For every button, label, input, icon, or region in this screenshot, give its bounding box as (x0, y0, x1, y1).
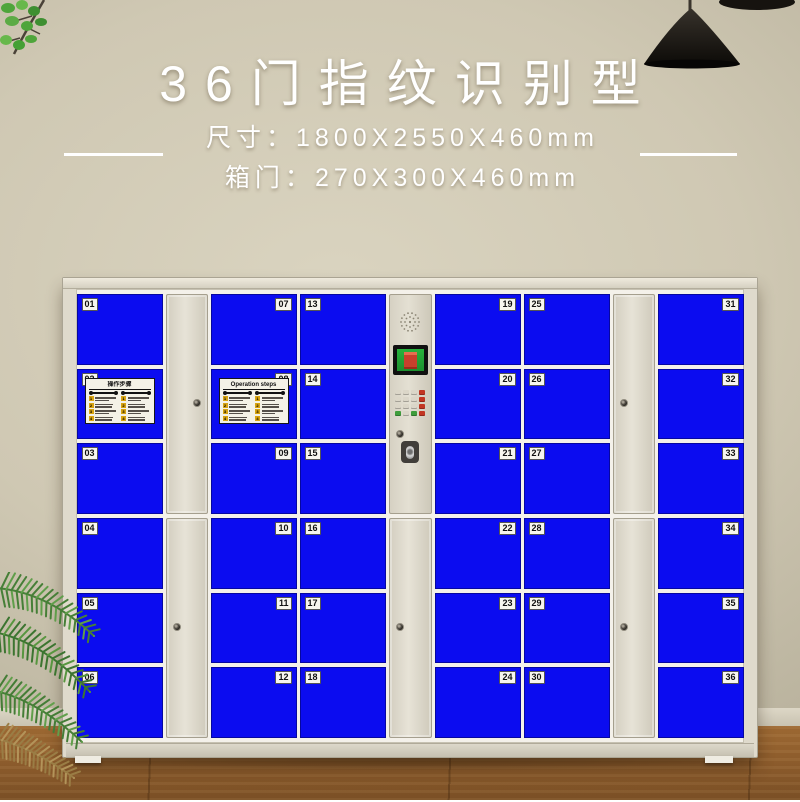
door-column: 252627282930 (524, 290, 610, 742)
door-number-label: 26 (529, 373, 545, 386)
step-arrow-line (122, 392, 150, 394)
step-text-lines (229, 409, 252, 414)
step-item: 4 (255, 416, 285, 421)
door-number-label: 14 (305, 373, 321, 386)
step-text-bar (95, 404, 113, 406)
keypad-key[interactable] (419, 411, 425, 416)
step-text-bar (229, 397, 250, 399)
keyhole-lock[interactable] (396, 623, 404, 631)
door-number-label: 23 (499, 597, 515, 610)
locker-door-21[interactable]: 21 (435, 443, 521, 514)
locker-door-07[interactable]: 07 (211, 294, 297, 365)
keypad-key[interactable] (403, 390, 409, 395)
step-number: 3 (255, 409, 260, 414)
step-number: 1 (255, 396, 260, 401)
step-text-bar (128, 406, 145, 408)
step-item: 3 (121, 409, 151, 414)
step-number: 1 (121, 396, 126, 401)
locker-door-31[interactable]: 31 (658, 294, 744, 365)
step-text-bar (128, 400, 142, 402)
locker-door-33[interactable]: 33 (658, 443, 744, 514)
keyhole-lock[interactable] (620, 623, 628, 631)
step-number: 1 (223, 396, 228, 401)
step-number: 4 (255, 416, 260, 421)
keypad-key[interactable] (419, 397, 425, 402)
door-number-label: 03 (82, 447, 98, 460)
step-text-lines (128, 409, 151, 414)
screen-graphic (404, 352, 417, 369)
step-text-bar (262, 404, 280, 406)
step-number: 4 (89, 416, 94, 421)
tall-door-column (166, 290, 208, 742)
door-number-label: 36 (722, 671, 738, 684)
step-text-bar (229, 406, 246, 408)
step-number: 2 (223, 403, 228, 408)
locker-door-32[interactable]: 32 (658, 369, 744, 440)
keypad-key[interactable] (395, 404, 401, 409)
display-screen[interactable] (393, 345, 428, 375)
step-number: 4 (223, 416, 228, 421)
step-item: 2 (89, 403, 119, 408)
locker-door-10[interactable]: 10 (211, 518, 297, 589)
locker-door-03[interactable]: 03 (77, 443, 163, 514)
tall-door-column (613, 290, 655, 742)
door-column: 313233343536 (658, 290, 744, 742)
step-text-bar (229, 413, 243, 415)
step-text-bar (95, 419, 112, 421)
keypad-key[interactable] (419, 404, 425, 409)
step-text-bar (128, 413, 142, 415)
keyhole-lock[interactable] (193, 399, 201, 407)
locker-door-22[interactable]: 22 (435, 518, 521, 589)
locker-door-34[interactable]: 34 (658, 518, 744, 589)
step-text-bar (229, 419, 246, 421)
locker-door-24[interactable]: 24 (435, 667, 521, 738)
keypad-key[interactable] (395, 397, 401, 402)
sticker-column: 1234 (223, 391, 253, 421)
door-number-label: 17 (305, 597, 321, 610)
step-text-bar (229, 410, 250, 412)
sticker-column: 1234 (89, 391, 119, 421)
door-number-label: 16 (305, 522, 321, 535)
step-text-bar (262, 397, 283, 399)
step-item: 2 (223, 403, 253, 408)
door-number-label: 32 (722, 373, 738, 386)
display-screen-content (397, 349, 424, 371)
keypad-key[interactable] (411, 411, 417, 416)
step-text-bar (229, 400, 243, 402)
locker-door-02[interactable]: 02操作步骤12341234 (77, 369, 163, 440)
divider-line-left (64, 153, 163, 156)
door-number-label: 04 (82, 522, 98, 535)
locker-door-13[interactable]: 13 (300, 294, 386, 365)
sticker-column: 1234 (255, 391, 285, 421)
step-text-bar (128, 397, 149, 399)
spec-door-value: 270X300X460mm (315, 164, 580, 192)
step-text-lines (262, 403, 285, 408)
tall-locker-door[interactable] (613, 294, 655, 514)
locker-door-30[interactable]: 30 (524, 667, 610, 738)
door-column: 131415161718 (300, 290, 386, 742)
door-number-label: 30 (529, 671, 545, 684)
door-number-label: 09 (275, 447, 291, 460)
step-text-bar (95, 400, 109, 402)
step-text-lines (95, 416, 118, 421)
door-number-label: 25 (529, 298, 545, 311)
door-number-label: 10 (275, 522, 291, 535)
keypad-key[interactable] (411, 397, 417, 402)
step-text-lines (262, 396, 285, 401)
door-number-label: 33 (722, 447, 738, 460)
door-number-label: 29 (529, 597, 545, 610)
door-number-label: 12 (275, 671, 291, 684)
sticker-title: 操作步骤 (89, 381, 151, 390)
step-item: 1 (89, 396, 119, 401)
step-number: 2 (255, 403, 260, 408)
door-number-label: 27 (529, 447, 545, 460)
door-column: 0708Operation steps1234123409101112 (211, 290, 297, 742)
step-item: 4 (89, 416, 119, 421)
spec-door-label: 箱门： (225, 164, 315, 192)
locker-door-16[interactable]: 16 (300, 518, 386, 589)
door-number-label: 24 (499, 671, 515, 684)
keypad-key[interactable] (419, 390, 425, 395)
step-number: 2 (89, 403, 94, 408)
divider-line-right (640, 153, 737, 156)
door-number-label: 15 (305, 447, 321, 460)
keypad-key[interactable] (403, 411, 409, 416)
step-number: 3 (89, 409, 94, 414)
locker-base (66, 743, 754, 757)
locker-door-11[interactable]: 11 (211, 593, 297, 664)
door-number-label: 11 (276, 597, 292, 610)
operation-steps-sticker: 操作步骤12341234 (85, 378, 155, 424)
fingerprint-window (406, 446, 414, 459)
page-title: 36门指纹识别型 (0, 44, 800, 116)
step-number: 2 (121, 403, 126, 408)
locker-door-29[interactable]: 29 (524, 593, 610, 664)
step-text-bar (262, 400, 276, 402)
step-text-bar (262, 419, 279, 421)
step-text-bar (95, 410, 116, 412)
step-text-bar (95, 397, 116, 399)
locker-door-09[interactable]: 09 (211, 443, 297, 514)
locker-door-12[interactable]: 12 (211, 667, 297, 738)
step-text-bar (128, 417, 146, 419)
locker-door-36[interactable]: 36 (658, 667, 744, 738)
service-door[interactable] (389, 518, 432, 738)
locker-door-15[interactable]: 15 (300, 443, 386, 514)
step-text-lines (262, 416, 285, 421)
step-item: 4 (121, 416, 151, 421)
step-number: 4 (121, 416, 126, 421)
tall-locker-door[interactable] (613, 518, 655, 738)
door-number-label: 35 (722, 597, 738, 610)
step-number: 3 (121, 409, 126, 414)
locker-door-08[interactable]: 08Operation steps12341234 (211, 369, 297, 440)
door-number-label: 19 (499, 298, 515, 311)
keypad-key[interactable] (411, 390, 417, 395)
step-text-bar (128, 410, 149, 412)
door-number-label: 07 (275, 298, 291, 311)
spec-size-label: 尺寸： (206, 124, 296, 152)
step-text-lines (95, 409, 118, 414)
sticker-columns: 12341234 (223, 391, 285, 421)
sticker-columns: 12341234 (89, 391, 151, 421)
step-item: 3 (89, 409, 119, 414)
step-text-lines (128, 416, 151, 421)
locker-doors-area: 0102操作步骤12341234030405060708Operation st… (76, 289, 744, 743)
palm-plant-icon (0, 572, 110, 802)
door-number-label: 28 (529, 522, 545, 535)
step-text-lines (229, 396, 252, 401)
step-text-lines (128, 403, 151, 408)
step-item: 2 (255, 403, 285, 408)
step-number: 1 (89, 396, 94, 401)
spec-size-value: 1800X2550X460mm (296, 124, 599, 152)
locker-door-14[interactable]: 14 (300, 369, 386, 440)
step-text-bar (262, 410, 283, 412)
keypad (395, 390, 425, 416)
keyhole-lock[interactable] (396, 430, 404, 438)
fingerprint-reader[interactable] (401, 441, 419, 463)
door-number-label: 18 (305, 671, 321, 684)
step-arrow-line (224, 392, 252, 394)
door-column: 192021222324 (435, 290, 521, 742)
door-number-label: 01 (82, 298, 98, 311)
step-item: 1 (121, 396, 151, 401)
keyhole-lock[interactable] (620, 399, 628, 407)
door-number-label: 31 (722, 298, 738, 311)
locker-door-27[interactable]: 27 (524, 443, 610, 514)
keypad-key[interactable] (395, 411, 401, 416)
locker-door-17[interactable]: 17 (300, 593, 386, 664)
step-text-bar (229, 404, 247, 406)
step-text-lines (128, 396, 151, 401)
tall-locker-door[interactable] (166, 518, 208, 738)
step-text-bar (262, 406, 279, 408)
control-column (389, 290, 432, 742)
door-number-label: 22 (499, 522, 515, 535)
step-arrow-line (256, 392, 284, 394)
sticker-column: 1234 (121, 391, 151, 421)
locker-door-01[interactable]: 01 (77, 294, 163, 365)
scene: { "header": { "title": "36门指纹识别型", "spec… (0, 0, 800, 800)
step-text-bar (128, 404, 146, 406)
step-item: 3 (223, 409, 253, 414)
locker-foot-right (705, 756, 733, 763)
locker-door-19[interactable]: 19 (435, 294, 521, 365)
tall-locker-door[interactable] (166, 294, 208, 514)
locker-top-lip (63, 278, 757, 289)
spec-door-row: 箱门：270X300X460mm (0, 158, 800, 194)
step-item: 3 (255, 409, 285, 414)
door-number-label: 34 (722, 522, 738, 535)
step-text-bar (262, 413, 276, 415)
keypad-key[interactable] (403, 397, 409, 402)
speaker-grille-icon (397, 309, 423, 335)
spec-size-row: 尺寸：1800X2550X460mm (0, 118, 800, 154)
keypad-key[interactable] (403, 404, 409, 409)
step-text-lines (229, 416, 252, 421)
operation-steps-sticker: Operation steps12341234 (219, 378, 289, 424)
locker-door-20[interactable]: 20 (435, 369, 521, 440)
step-text-bar (128, 419, 145, 421)
step-text-bar (95, 413, 109, 415)
door-number-label: 20 (499, 373, 515, 386)
step-text-lines (229, 403, 252, 408)
step-item: 4 (223, 416, 253, 421)
step-text-bar (95, 417, 113, 419)
step-arrow-line (90, 392, 118, 394)
locker-door-35[interactable]: 35 (658, 593, 744, 664)
step-item: 1 (223, 396, 253, 401)
step-text-bar (229, 417, 247, 419)
control-panel (389, 294, 432, 514)
step-text-bar (95, 406, 112, 408)
locker-door-28[interactable]: 28 (524, 518, 610, 589)
locker-cabinet: 0102操作步骤12341234030405060708Operation st… (62, 277, 758, 758)
step-text-lines (262, 409, 285, 414)
keypad-key[interactable] (411, 404, 417, 409)
door-number-label: 21 (499, 447, 515, 460)
locker-door-23[interactable]: 23 (435, 593, 521, 664)
keypad-key[interactable] (395, 390, 401, 395)
door-number-label: 13 (305, 298, 321, 311)
step-item: 1 (255, 396, 285, 401)
step-text-bar (262, 417, 280, 419)
step-item: 2 (121, 403, 151, 408)
step-text-lines (95, 396, 118, 401)
sticker-title: Operation steps (223, 381, 285, 390)
locker-door-18[interactable]: 18 (300, 667, 386, 738)
locker-door-26[interactable]: 26 (524, 369, 610, 440)
step-number: 3 (223, 409, 228, 414)
locker-door-25[interactable]: 25 (524, 294, 610, 365)
step-text-lines (95, 403, 118, 408)
keyhole-lock[interactable] (173, 623, 181, 631)
